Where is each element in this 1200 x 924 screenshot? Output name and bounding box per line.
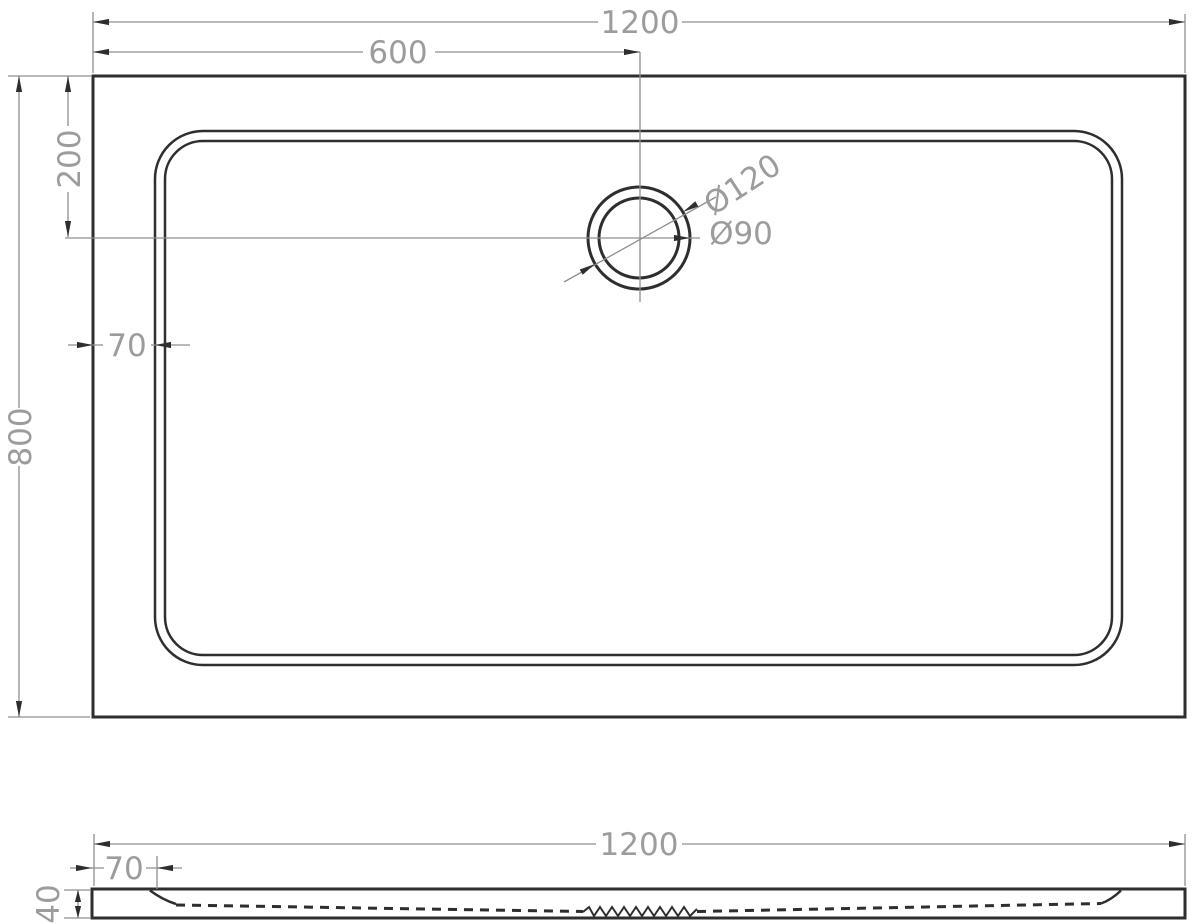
arrowhead — [65, 76, 71, 92]
arrowhead — [93, 19, 109, 25]
dimension-label: 200 — [52, 129, 88, 188]
dimension-label: 70 — [107, 328, 146, 364]
arrowhead — [16, 76, 22, 92]
dimension-label: 1200 — [601, 5, 680, 41]
arrowhead — [65, 221, 71, 237]
dim-side-height: 40 — [31, 884, 90, 923]
side-view: 1200 70 40 — [31, 827, 1185, 924]
dim-side-width: 1200 — [94, 827, 1185, 886]
technical-drawing-sheet: 1200 600 800 200 — [0, 0, 1200, 924]
top-view: 1200 600 800 200 — [3, 5, 1185, 717]
dim-top-width: 1200 — [93, 5, 1185, 73]
arrowhead — [16, 701, 22, 717]
dim-drain-offset-y: 200 — [52, 76, 88, 237]
arrowhead — [75, 890, 81, 902]
arrowhead — [75, 906, 81, 918]
arrowhead — [1169, 19, 1185, 25]
arrowhead — [624, 49, 640, 55]
tray-outer-edge — [93, 76, 1185, 717]
dimension-label: 800 — [3, 407, 39, 466]
dimension-label: 600 — [368, 35, 427, 71]
arrowhead — [1169, 841, 1185, 847]
arrowhead — [77, 342, 93, 348]
drain-inner-diameter-label: Ø90 — [709, 216, 773, 252]
dimension-label: 70 — [104, 851, 143, 887]
arrowhead — [93, 49, 109, 55]
dimension-label: 40 — [31, 884, 67, 923]
arrowhead — [94, 841, 110, 847]
dim-rim-side-view: 70 — [70, 851, 182, 889]
arrowhead — [76, 865, 92, 871]
arrowhead — [157, 865, 173, 871]
tray-section-outline — [92, 889, 1185, 918]
dim-drain-offset-x: 600 — [93, 35, 640, 71]
dimension-label: 1200 — [600, 827, 679, 863]
